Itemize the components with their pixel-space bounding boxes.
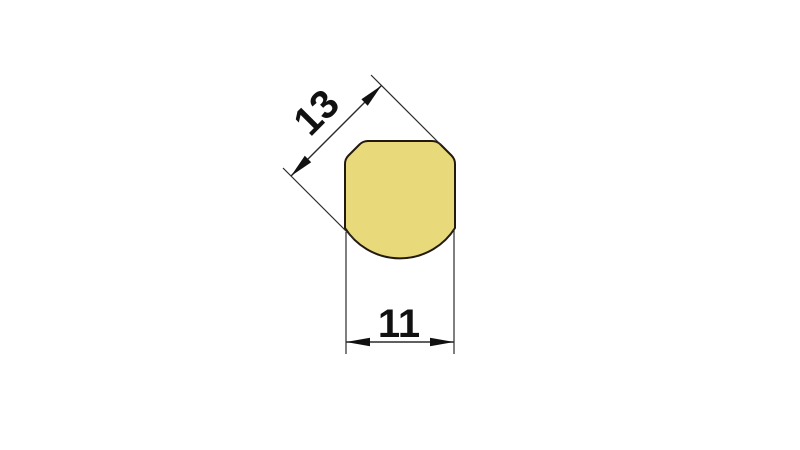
technical-drawing: 13 11 [0, 0, 800, 450]
dimension-label-11: 11 [378, 302, 420, 346]
drawing-canvas: 13 11 [0, 0, 800, 450]
profile-cross-section-shape [345, 141, 455, 258]
